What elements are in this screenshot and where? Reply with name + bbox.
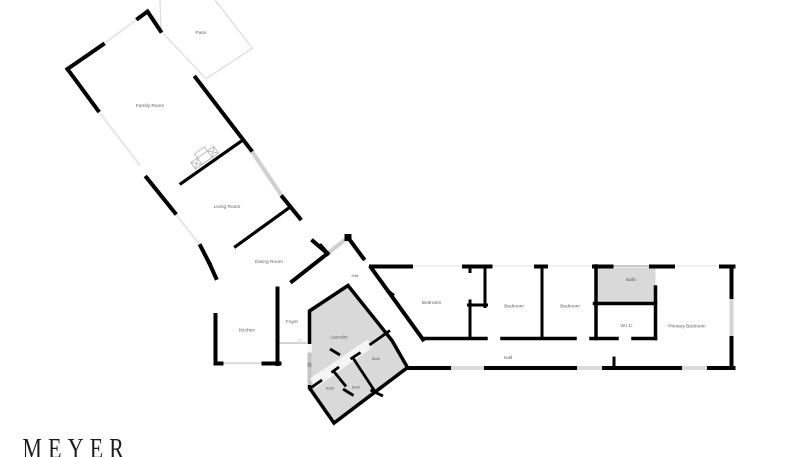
svg-text:Dining Room: Dining Room [255,259,283,265]
svg-text:Patio: Patio [196,30,207,36]
svg-text:Bath: Bath [352,385,360,390]
svg-text:Bath: Bath [326,386,334,391]
svg-text:Family Room: Family Room [136,103,164,109]
svg-text:Foyer: Foyer [286,319,299,325]
svg-text:Bedroom: Bedroom [560,304,579,310]
svg-text:3'0": 3'0" [298,339,303,343]
svg-text:Bedroom: Bedroom [504,304,523,310]
svg-text:Kitchen: Kitchen [239,328,255,334]
svg-text:W.I.C.: W.I.C. [620,323,633,329]
svg-text:Bedroom: Bedroom [422,300,441,306]
svg-text:MEYER: MEYER [23,435,131,457]
svg-text:Laundry: Laundry [330,335,348,341]
svg-text:Bath: Bath [372,356,380,361]
svg-text:Hall: Hall [504,355,512,361]
svg-text:Living Room: Living Room [214,204,241,210]
svg-text:Hall: Hall [352,273,359,278]
svg-text:Primary Bedroom: Primary Bedroom [668,324,705,330]
svg-text:Bath: Bath [626,277,636,283]
